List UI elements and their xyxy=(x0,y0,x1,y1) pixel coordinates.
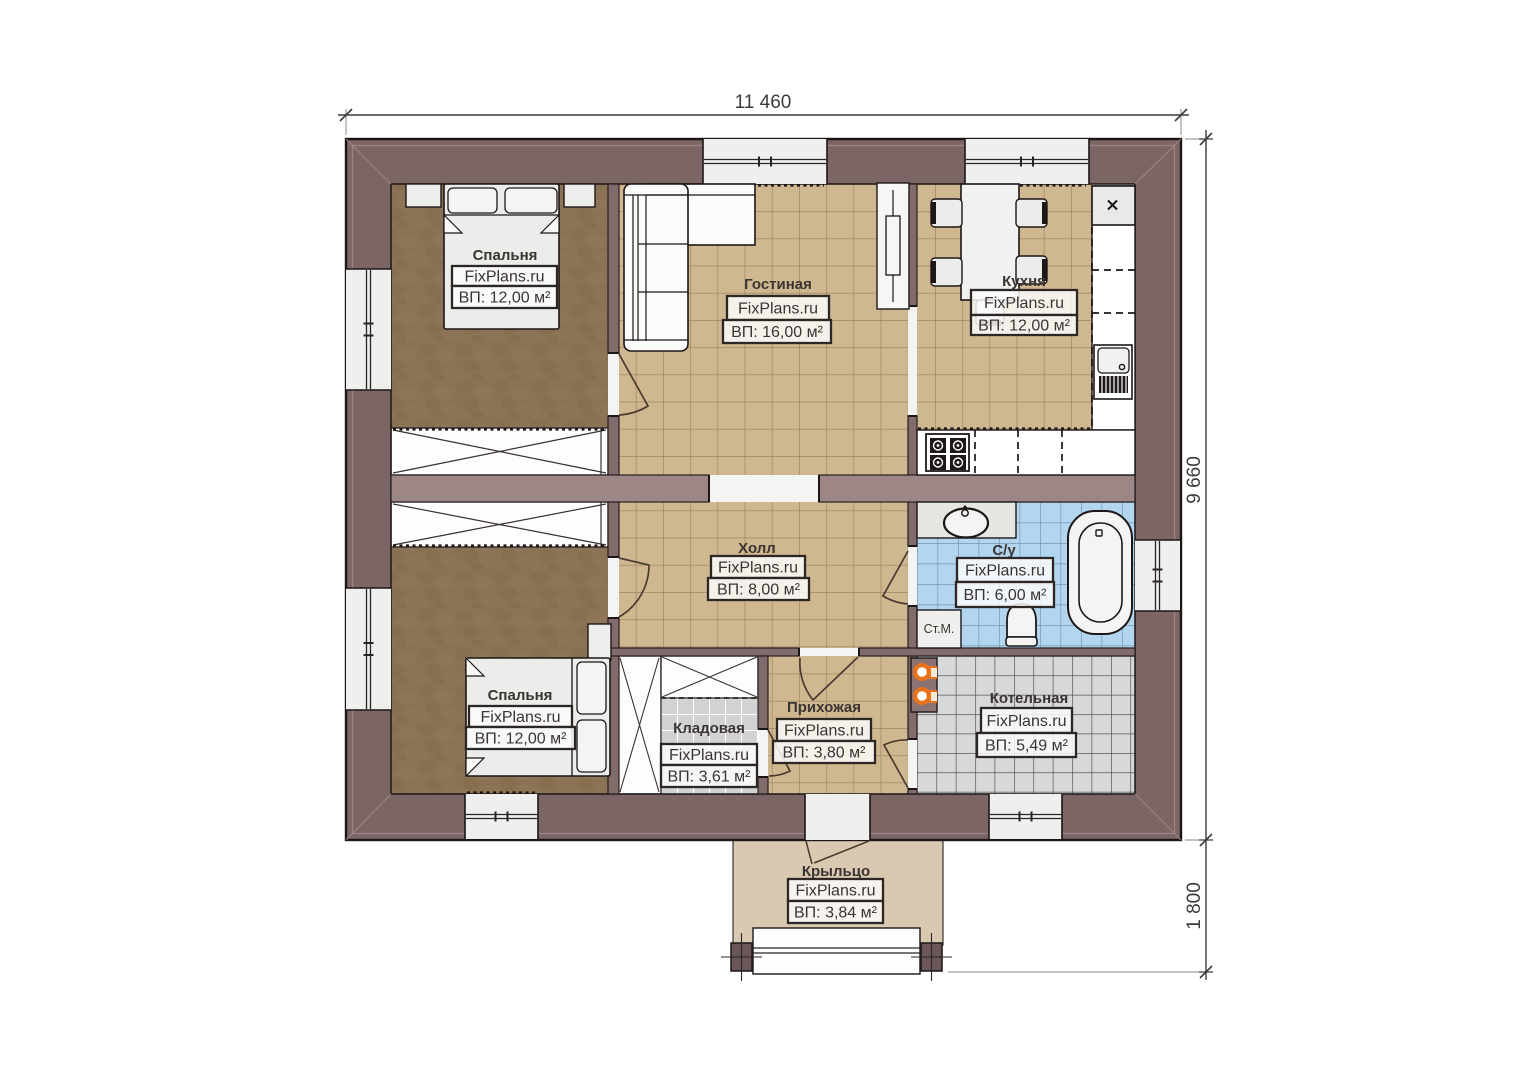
svg-text:FixPlans.ru: FixPlans.ru xyxy=(669,747,749,764)
svg-text:FixPlans.ru: FixPlans.ru xyxy=(984,295,1064,312)
svg-text:FixPlans.ru: FixPlans.ru xyxy=(464,269,544,286)
svg-text:FixPlans.ru: FixPlans.ru xyxy=(965,563,1045,580)
svg-text:Ст.М.: Ст.М. xyxy=(924,622,955,636)
svg-text:ВП: 12,00 м²: ВП: 12,00 м² xyxy=(978,318,1071,335)
svg-text:ВП: 5,49 м²: ВП: 5,49 м² xyxy=(985,738,1069,755)
svg-text:С/у: С/у xyxy=(992,542,1016,559)
svg-text:FixPlans.ru: FixPlans.ru xyxy=(986,713,1066,730)
svg-text:Кухня: Кухня xyxy=(1002,273,1046,290)
svg-text:FixPlans.ru: FixPlans.ru xyxy=(795,883,875,900)
svg-text:FixPlans.ru: FixPlans.ru xyxy=(718,560,798,577)
svg-text:FixPlans.ru: FixPlans.ru xyxy=(784,723,864,740)
svg-text:ВП: 3,80 м²: ВП: 3,80 м² xyxy=(783,745,867,762)
svg-text:ВП: 12,00 м²: ВП: 12,00 м² xyxy=(459,290,552,307)
svg-text:ВП: 3,61 м²: ВП: 3,61 м² xyxy=(668,769,752,786)
svg-text:11 460: 11 460 xyxy=(735,92,792,113)
svg-text:ВП: 12,00 м²: ВП: 12,00 м² xyxy=(475,731,568,748)
svg-text:Прихожая: Прихожая xyxy=(787,699,861,716)
svg-text:ВП: 16,00 м²: ВП: 16,00 м² xyxy=(731,324,824,341)
svg-text:Кладовая: Кладовая xyxy=(673,720,745,737)
svg-text:Котельная: Котельная xyxy=(990,690,1069,707)
svg-text:ВП: 8,00 м²: ВП: 8,00 м² xyxy=(717,582,801,599)
svg-text:FixPlans.ru: FixPlans.ru xyxy=(480,709,560,726)
svg-text:Гостиная: Гостиная xyxy=(744,276,812,293)
svg-text:Спальня: Спальня xyxy=(473,247,538,264)
svg-text:Крыльцо: Крыльцо xyxy=(802,863,870,880)
svg-text:Спальня: Спальня xyxy=(488,687,553,704)
svg-text:Холл: Холл xyxy=(738,540,776,557)
svg-text:ВП: 6,00 м²: ВП: 6,00 м² xyxy=(964,587,1048,604)
svg-text:1 800: 1 800 xyxy=(1184,882,1205,930)
svg-text:ВП: 3,84 м²: ВП: 3,84 м² xyxy=(794,905,878,922)
svg-text:9 660: 9 660 xyxy=(1184,456,1205,504)
svg-text:FixPlans.ru: FixPlans.ru xyxy=(738,301,818,318)
